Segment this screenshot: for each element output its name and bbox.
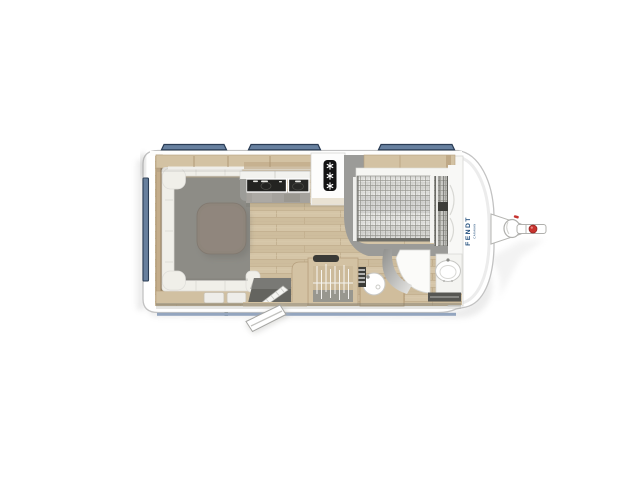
- svg-text:CARAVAN: CARAVAN: [473, 223, 477, 238]
- svg-text:FENDT: FENDT: [465, 216, 472, 246]
